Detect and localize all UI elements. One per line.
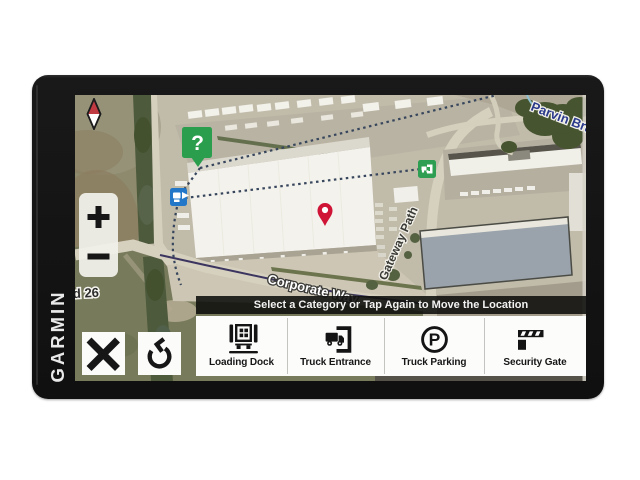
svg-text:P: P (429, 330, 441, 350)
svg-text:d 26: d 26 (75, 285, 99, 301)
svg-text:?: ? (191, 132, 204, 155)
